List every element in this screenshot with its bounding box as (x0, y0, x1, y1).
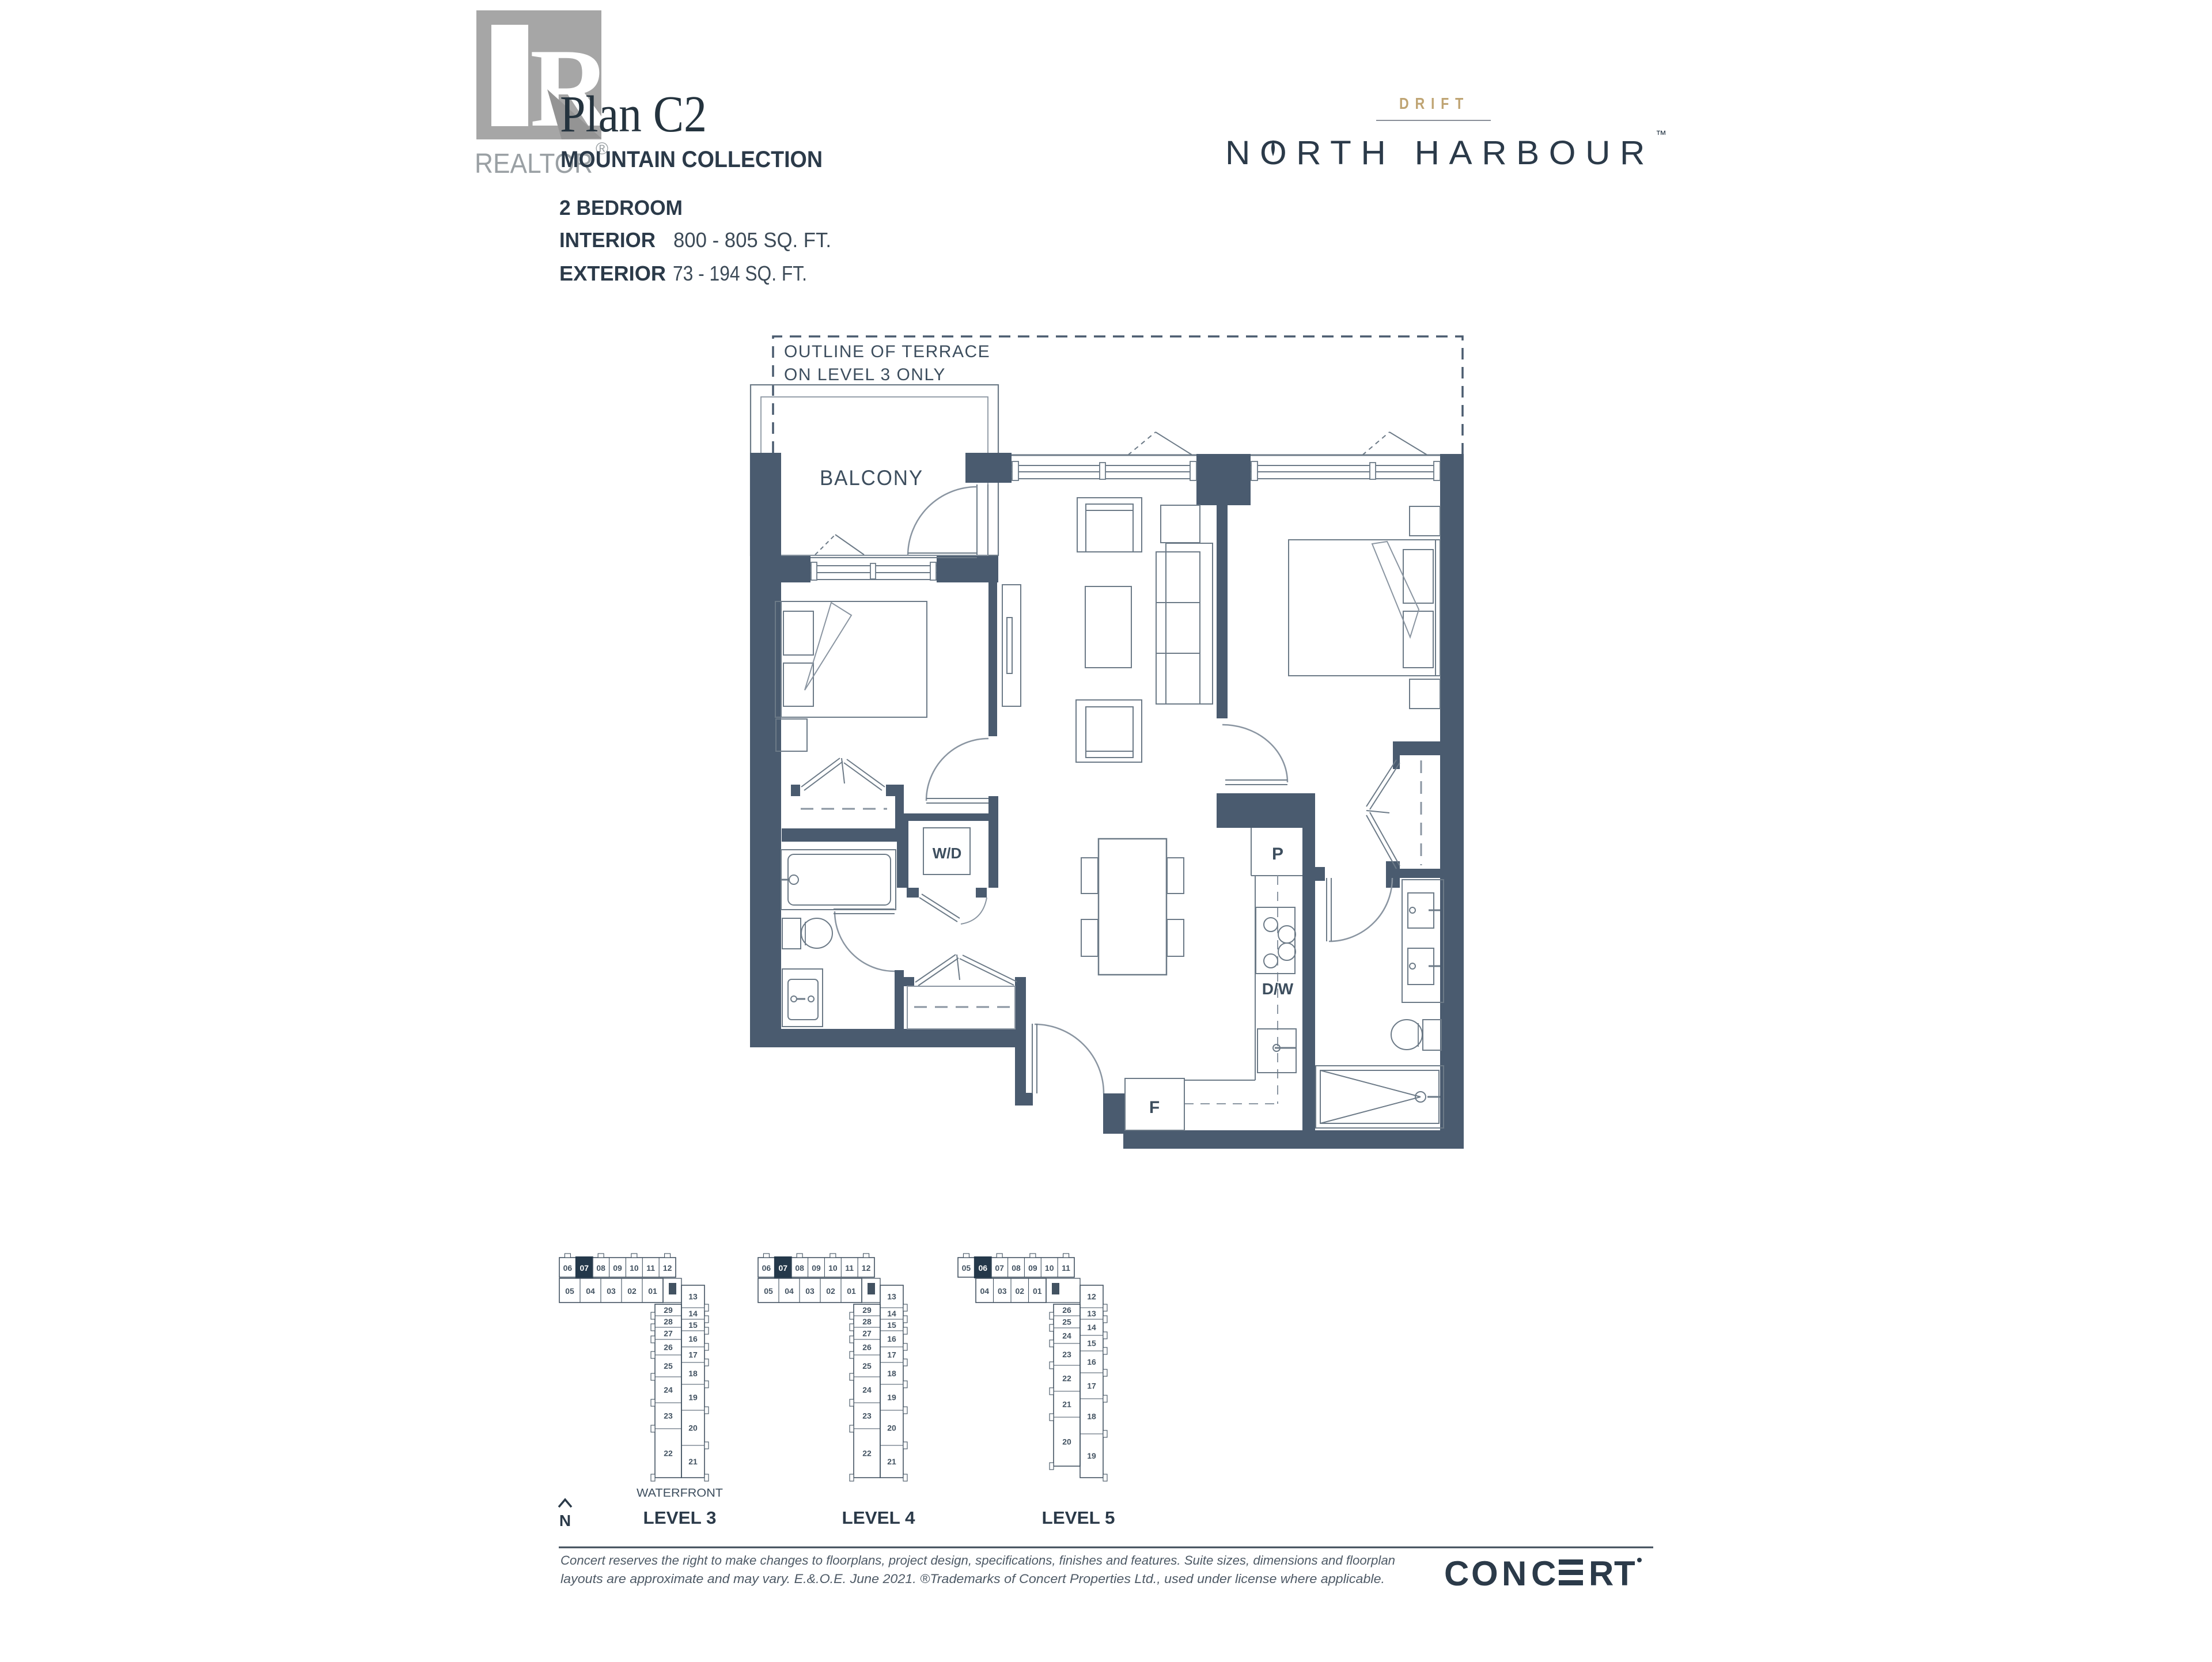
svg-text:P: P (1272, 845, 1283, 864)
svg-text:01: 01 (847, 1286, 856, 1296)
svg-text:21: 21 (688, 1457, 698, 1466)
svg-text:INTERIOR: INTERIOR (559, 228, 656, 252)
svg-text:23: 23 (664, 1411, 673, 1421)
svg-text:21: 21 (887, 1457, 896, 1466)
svg-text:Plan C2: Plan C2 (560, 86, 707, 143)
svg-text:10: 10 (630, 1263, 639, 1273)
svg-text:12: 12 (663, 1263, 672, 1273)
svg-text:22: 22 (862, 1449, 872, 1458)
svg-text:DRIFT: DRIFT (1399, 94, 1469, 112)
svg-text:O: O (1471, 1554, 1498, 1593)
svg-text:13: 13 (688, 1292, 698, 1301)
svg-text:15: 15 (1087, 1339, 1096, 1348)
svg-text:73 - 194 SQ. FT.: 73 - 194 SQ. FT. (673, 262, 807, 285)
svg-text:24: 24 (862, 1385, 872, 1395)
svg-text:05: 05 (565, 1286, 574, 1296)
svg-text:21: 21 (1062, 1400, 1071, 1409)
svg-text:20: 20 (887, 1424, 896, 1433)
svg-text:25: 25 (664, 1361, 673, 1371)
svg-text:14: 14 (688, 1309, 698, 1318)
svg-text:18: 18 (887, 1369, 896, 1378)
svg-text:16: 16 (688, 1334, 698, 1343)
svg-text:F: F (1149, 1098, 1160, 1117)
svg-text:16: 16 (1087, 1357, 1096, 1366)
svg-text:W/D: W/D (933, 845, 962, 862)
svg-text:08: 08 (795, 1263, 804, 1273)
svg-text:29: 29 (664, 1305, 673, 1315)
svg-text:NORTH HARBOUR: NORTH HARBOUR (1225, 134, 1654, 172)
svg-text:01: 01 (648, 1286, 657, 1296)
svg-text:LEVEL 3: LEVEL 3 (643, 1508, 717, 1528)
svg-text:C: C (1444, 1554, 1469, 1593)
svg-text:18: 18 (1087, 1412, 1096, 1421)
svg-text:800 - 805 SQ. FT.: 800 - 805 SQ. FT. (673, 228, 831, 252)
svg-text:LEVEL 4: LEVEL 4 (842, 1508, 916, 1528)
svg-text:20: 20 (688, 1424, 698, 1433)
svg-text:13: 13 (1087, 1309, 1096, 1318)
svg-text:19: 19 (887, 1393, 896, 1402)
svg-text:11: 11 (845, 1263, 854, 1273)
svg-text:01: 01 (1033, 1286, 1042, 1296)
svg-text:29: 29 (862, 1305, 872, 1315)
svg-text:23: 23 (1062, 1350, 1071, 1359)
svg-text:06: 06 (762, 1263, 771, 1273)
svg-text:22: 22 (664, 1449, 673, 1458)
svg-text:18: 18 (688, 1369, 698, 1378)
svg-text:03: 03 (805, 1286, 815, 1296)
svg-text:N: N (559, 1512, 571, 1530)
svg-text:24: 24 (664, 1385, 673, 1395)
svg-text:C: C (1531, 1554, 1556, 1593)
svg-text:25: 25 (862, 1361, 872, 1371)
svg-text:LEVEL 5: LEVEL 5 (1042, 1508, 1115, 1528)
svg-text:25: 25 (1062, 1318, 1071, 1327)
svg-text:03: 03 (998, 1286, 1007, 1296)
svg-text:WATERFRONT: WATERFRONT (637, 1487, 723, 1500)
svg-text:12: 12 (1087, 1292, 1096, 1301)
svg-text:10: 10 (828, 1263, 838, 1273)
svg-text:05: 05 (764, 1286, 773, 1296)
svg-text:07: 07 (995, 1263, 1004, 1273)
svg-text:12: 12 (862, 1263, 871, 1273)
svg-text:T: T (1614, 1554, 1635, 1593)
svg-text:02: 02 (826, 1286, 835, 1296)
svg-text:N: N (1502, 1554, 1527, 1593)
svg-text:14: 14 (1087, 1323, 1096, 1332)
svg-text:09: 09 (1028, 1263, 1037, 1273)
svg-text:layouts are approximate and ma: layouts are approximate and may vary. E.… (560, 1572, 1385, 1586)
svg-text:19: 19 (1087, 1451, 1096, 1460)
svg-text:28: 28 (862, 1317, 872, 1326)
svg-text:06: 06 (563, 1263, 573, 1273)
svg-text:MOUNTAIN COLLECTION: MOUNTAIN COLLECTION (560, 147, 823, 172)
svg-text:11: 11 (1062, 1263, 1070, 1273)
svg-text:05: 05 (962, 1263, 971, 1273)
svg-text:17: 17 (688, 1350, 698, 1360)
svg-text:03: 03 (607, 1286, 616, 1296)
svg-text:06: 06 (978, 1263, 987, 1273)
svg-text:20: 20 (1062, 1437, 1071, 1447)
svg-text:22: 22 (1062, 1374, 1071, 1383)
svg-text:26: 26 (1062, 1305, 1071, 1315)
svg-text:15: 15 (688, 1320, 698, 1330)
svg-text:04: 04 (586, 1286, 595, 1296)
svg-text:09: 09 (613, 1263, 622, 1273)
svg-text:EXTERIOR: EXTERIOR (559, 262, 666, 285)
svg-text:26: 26 (862, 1343, 872, 1352)
svg-text:16: 16 (887, 1334, 896, 1343)
svg-text:09: 09 (812, 1263, 821, 1273)
svg-text:08: 08 (596, 1263, 605, 1273)
svg-text:02: 02 (1015, 1286, 1024, 1296)
svg-text:11: 11 (646, 1263, 655, 1273)
svg-text:17: 17 (887, 1350, 896, 1360)
svg-text:14: 14 (887, 1309, 896, 1318)
svg-text:10: 10 (1045, 1263, 1054, 1273)
svg-text:15: 15 (887, 1320, 896, 1330)
svg-text:27: 27 (862, 1329, 872, 1338)
svg-text:04: 04 (980, 1286, 989, 1296)
svg-text:ON LEVEL 3 ONLY: ON LEVEL 3 ONLY (784, 365, 946, 384)
svg-text:19: 19 (688, 1393, 698, 1402)
svg-text:24: 24 (1062, 1331, 1071, 1341)
svg-text:27: 27 (664, 1329, 673, 1338)
svg-text:D/W: D/W (1262, 980, 1294, 998)
svg-text:13: 13 (887, 1292, 896, 1301)
svg-text:OUTLINE OF TERRACE: OUTLINE OF TERRACE (784, 342, 990, 361)
svg-text:04: 04 (785, 1286, 794, 1296)
svg-text:28: 28 (664, 1317, 673, 1326)
svg-text:R: R (1589, 1554, 1613, 1593)
svg-text:Concert reserves the right to: Concert reserves the right to make chang… (560, 1553, 1395, 1568)
svg-text:02: 02 (627, 1286, 637, 1296)
svg-text:BALCONY: BALCONY (820, 466, 923, 490)
svg-text:17: 17 (1087, 1381, 1096, 1391)
svg-text:2 BEDROOM: 2 BEDROOM (559, 196, 683, 219)
svg-text:™: ™ (1656, 129, 1666, 141)
svg-text:08: 08 (1012, 1263, 1021, 1273)
svg-text:26: 26 (664, 1343, 673, 1352)
svg-text:07: 07 (778, 1263, 787, 1273)
svg-text:07: 07 (579, 1263, 589, 1273)
svg-text:23: 23 (862, 1411, 872, 1421)
